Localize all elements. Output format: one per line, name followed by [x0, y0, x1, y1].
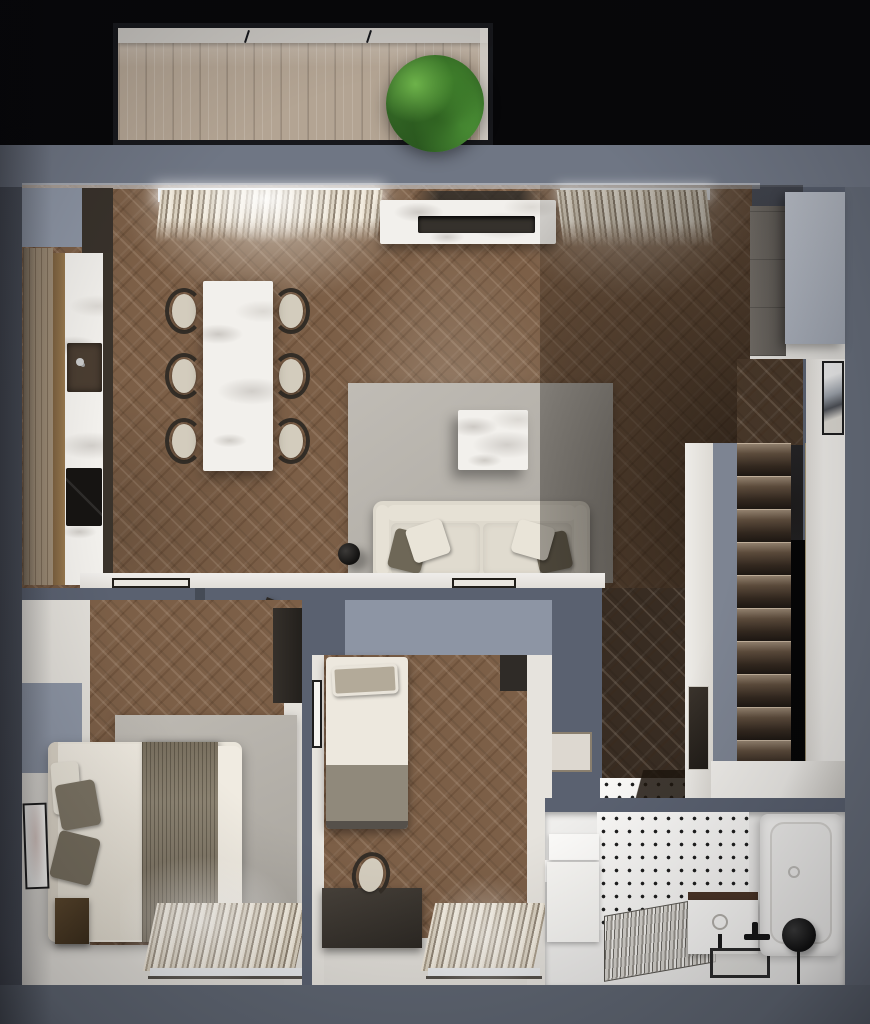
kitchen-sink: [67, 343, 102, 392]
window-2-blinds: [557, 190, 714, 247]
chair-seat: [279, 359, 303, 393]
stair-step: [737, 575, 791, 608]
bathtub-drain-icon: [788, 866, 800, 878]
outer-wall-left: [0, 187, 22, 1024]
bathroom-cabinet-upper: [549, 834, 599, 860]
stair-void: [791, 540, 805, 780]
single-bed-pillow: [331, 663, 398, 696]
stair-approach-floor: [737, 359, 803, 445]
kitchen-corner-wall: [22, 188, 82, 247]
single-bed: [326, 657, 408, 829]
bathroom-top-wall: [545, 798, 845, 812]
bedroom-divider-wall: [302, 590, 312, 985]
window-1-blinds: [155, 190, 382, 242]
wardrobe-top: [785, 192, 845, 344]
vanity-wood-edge: [688, 892, 758, 900]
stair-landing: [711, 761, 845, 800]
vanity-basin-icon: [712, 914, 728, 930]
dining-chair: [165, 418, 203, 464]
hallway-art: [822, 361, 844, 435]
second-bedroom-art: [312, 680, 322, 748]
kitchen-counter-edge: [103, 253, 113, 585]
kitchen-cooktop: [66, 468, 102, 526]
dining-chair: [165, 288, 203, 334]
tub-faucet-riser-icon: [752, 922, 758, 938]
door-mat: [452, 578, 516, 588]
stair-step: [737, 443, 791, 476]
hallway-shadow: [600, 770, 687, 800]
sofa-armrest-right: [574, 505, 587, 575]
single-bed-frame: [326, 821, 408, 829]
kitchen-faucet-icon: [76, 358, 84, 366]
chair-seat: [279, 294, 303, 328]
coffee-table: [458, 410, 528, 470]
chair-seat: [172, 424, 196, 458]
nightstand: [55, 898, 89, 944]
dining-table: [203, 281, 273, 471]
stair-step: [737, 476, 791, 509]
chair-seat: [279, 424, 303, 458]
kitchen-counter: [65, 253, 103, 585]
balcony-edge-highlight: [480, 28, 488, 140]
hall-cabinet: [548, 732, 592, 772]
floor-plan-stage: [0, 0, 870, 1024]
stair-step: [737, 641, 791, 674]
stair-step: [737, 608, 791, 641]
chair-seat: [172, 294, 196, 328]
second-bedroom-window-blinds: [421, 903, 547, 971]
outer-wall-right: [845, 187, 870, 1024]
balcony-sill: [118, 28, 488, 43]
desk-chair: [348, 849, 393, 901]
bedroom-leaning-art: [23, 803, 50, 890]
potted-plant: [386, 55, 484, 152]
second-bedroom-window-frame: [426, 976, 542, 979]
media-console-slot: [418, 216, 535, 233]
kitchen-tall-cabinets: [23, 248, 53, 585]
floor-lamp-icon: [338, 543, 360, 565]
black-round-stool: [782, 918, 816, 952]
hallway-floor: [602, 588, 687, 798]
staircase: [737, 443, 791, 773]
sofa: [373, 501, 590, 583]
dining-chair: [272, 418, 310, 464]
bathroom-cabinet-lower: [547, 862, 599, 942]
bedroom-wardrobe-dark: [273, 608, 302, 703]
balcony: [113, 23, 493, 145]
stair-step: [737, 509, 791, 542]
dining-chair: [272, 353, 310, 399]
outer-wall-bottom: [0, 985, 870, 1024]
stair-partition-top: [713, 443, 737, 800]
chair-seat: [172, 359, 196, 393]
bedroom-window-frame: [148, 976, 304, 979]
stool-leg-icon: [797, 950, 800, 984]
dining-chair: [272, 288, 310, 334]
bedroom-window-blinds: [143, 903, 309, 971]
hallway-niche: [688, 686, 709, 770]
vanity-faucet-icon: [718, 934, 722, 948]
dining-chair: [165, 353, 203, 399]
sofa-backrest: [387, 505, 576, 521]
hall-wall-column: [552, 590, 602, 812]
stair-step: [737, 674, 791, 707]
wardrobe-side-face: [750, 206, 786, 356]
single-bed-footer: [326, 765, 408, 821]
stair-step: [737, 542, 791, 575]
door-mat: [112, 578, 190, 588]
kitchen-dark-corner: [82, 188, 113, 254]
stair-step: [737, 707, 791, 740]
kitchen-shelf-strip: [53, 253, 65, 585]
bed-pillow-olive: [54, 779, 101, 831]
